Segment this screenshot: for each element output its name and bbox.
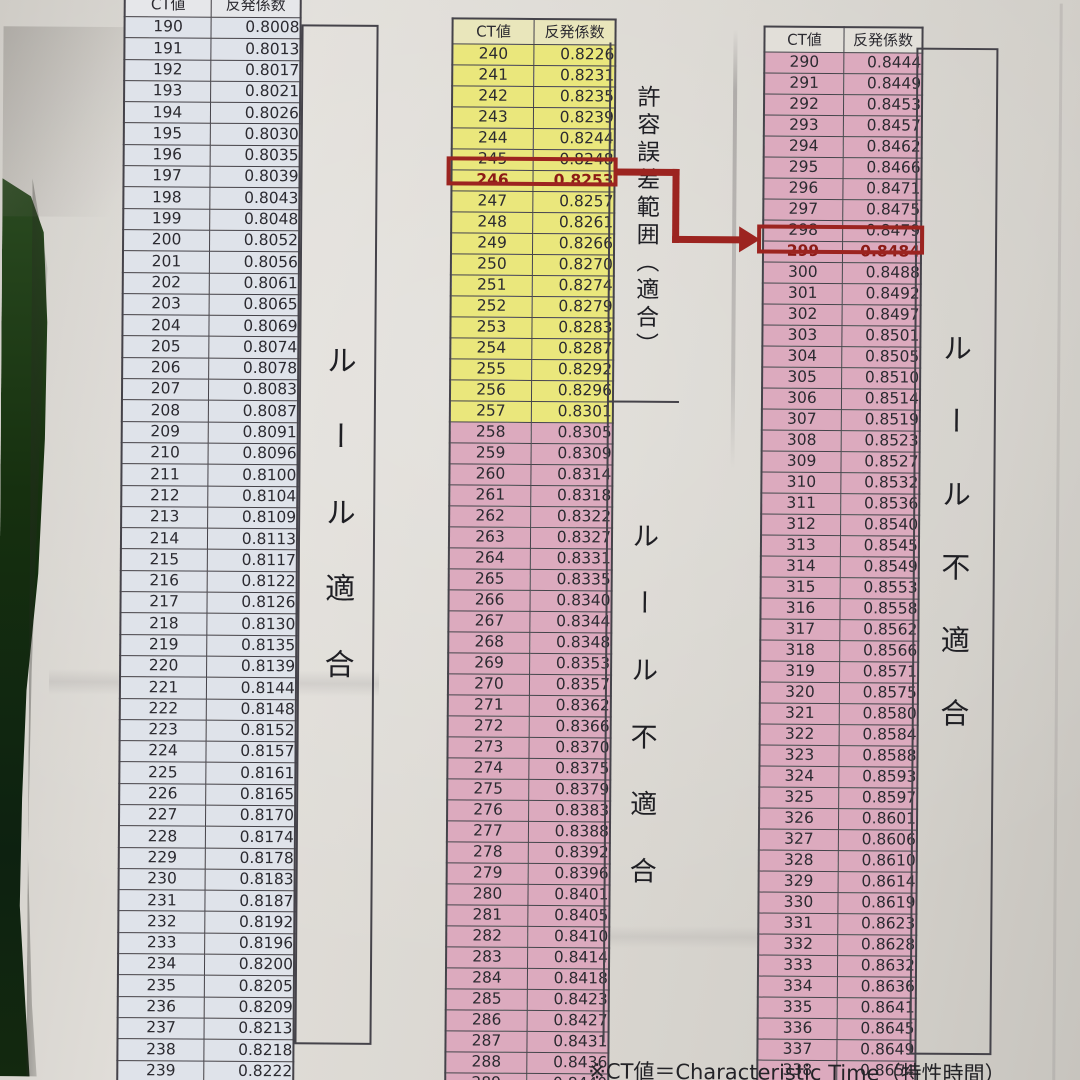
ct-value-cell: 243 (452, 107, 534, 129)
table-row: 3280.8610 (759, 850, 917, 872)
table-row: 3130.8545 (761, 535, 919, 557)
coeff-value-cell: 0.8052 (210, 230, 300, 252)
ct-value-cell: 280 (446, 884, 528, 906)
coeff-value-cell: 0.8566 (840, 641, 919, 663)
ct-value-cell: 319 (760, 661, 840, 683)
ct-value-cell: 265 (449, 569, 531, 591)
ct-value-cell: 258 (450, 422, 532, 444)
coeff-value-cell: 0.8488 (842, 263, 921, 285)
ct-value-cell: 255 (450, 359, 532, 381)
rule-violation-side-label: ルール不適合 (937, 332, 969, 770)
ct-value-cell: 328 (759, 850, 839, 872)
ct-value-cell: 227 (119, 805, 206, 827)
table-row: 2710.8362 (448, 695, 611, 717)
table-row: 2630.8327 (449, 527, 612, 549)
coeff-value-cell: 0.8532 (841, 473, 920, 495)
table-row: 3020.8497 (763, 304, 921, 326)
coeff-value-cell: 0.8628 (838, 935, 917, 957)
table-row: 2390.8222 (117, 1060, 293, 1080)
coeff-value-cell: 0.8606 (838, 830, 917, 852)
ct-value-cell: 335 (758, 997, 838, 1019)
table-row: 3140.8549 (761, 556, 919, 578)
table-row: 2340.8200 (118, 954, 294, 977)
table-row: 1940.8026 (124, 102, 300, 125)
coeff-value-cell: 0.8148 (206, 699, 296, 721)
table-row: 2160.8122 (121, 570, 297, 593)
table-row: 2570.8301 (450, 401, 613, 423)
table-row: 2220.8148 (120, 698, 296, 721)
table-row: 2840.8418 (446, 968, 609, 990)
coeff-value-cell: 0.8069 (209, 315, 299, 337)
table-row: 2120.8104 (121, 485, 297, 508)
coeff-value-cell: 0.8335 (530, 569, 612, 591)
table-row: 2320.8192 (118, 911, 294, 934)
table-row: 2330.8196 (118, 932, 294, 955)
ct-value-cell: 334 (758, 976, 838, 998)
column-header-coeff: 反発係数 (211, 0, 301, 18)
ct-value-cell: 271 (448, 695, 530, 717)
ct-value-cell: 242 (452, 86, 534, 108)
ct-value-cell: 293 (764, 115, 844, 137)
coeff-value-cell: 0.8087 (208, 401, 298, 423)
ct-value-cell: 263 (449, 527, 531, 549)
ct-value-cell: 239 (117, 1060, 204, 1080)
ct-value-cell: 212 (121, 485, 208, 507)
coeff-value-cell: 0.8410 (528, 926, 610, 948)
coeff-value-cell: 0.8266 (532, 233, 614, 255)
rule-ok-side-label-box: ルール適合 (294, 24, 378, 1045)
ct-value-cell: 237 (118, 1018, 205, 1040)
ct-value-cell: 286 (446, 1010, 528, 1032)
coeff-value-cell: 0.8331 (530, 548, 612, 570)
ct-value-cell: 296 (763, 178, 843, 200)
table-row: 2670.8344 (448, 611, 611, 633)
coeff-value-cell: 0.8348 (530, 632, 612, 654)
coeff-value-cell: 0.8091 (208, 422, 298, 444)
ct-value-cell: 294 (764, 136, 844, 158)
ct-value-cell: 314 (761, 556, 841, 578)
table-row: 2130.8109 (121, 506, 297, 529)
table-row: 2930.8457 (764, 115, 922, 137)
ct-value-cell: 222 (120, 698, 207, 720)
ct-value-cell: 279 (447, 863, 529, 885)
ct-value-cell: 278 (447, 842, 529, 864)
coeff-value-cell: 0.8283 (532, 317, 614, 339)
table-row: 1950.8030 (124, 123, 300, 146)
ct-value-cell: 287 (445, 1031, 527, 1053)
table-row: 2810.8405 (446, 905, 609, 927)
table-row: 3240.8593 (759, 766, 917, 788)
table-row: 1900.8008 (124, 17, 300, 40)
coeff-value-cell: 0.8540 (841, 515, 920, 537)
rule-ok-side-label: ルール適合 (320, 344, 353, 724)
rule-violation-side-label: ルール不適合 (626, 522, 656, 924)
coeff-value-cell: 0.8383 (529, 800, 611, 822)
coeff-value-cell: 0.8309 (531, 443, 613, 465)
table-row: 2110.8100 (121, 464, 297, 487)
table-row: 2360.8209 (118, 996, 294, 1019)
coeff-value-cell: 0.8109 (208, 507, 298, 529)
coeff-value-cell: 0.8514 (841, 389, 920, 411)
table-row: 1990.8048 (123, 208, 299, 231)
coeff-value-cell: 0.8379 (529, 779, 611, 801)
ct-value-cell: 273 (447, 737, 529, 759)
ct-value-cell: 281 (446, 905, 528, 927)
table-row: 2700.8357 (448, 674, 611, 696)
table-row: 2530.8283 (450, 317, 613, 339)
coeff-value-cell: 0.8510 (842, 368, 921, 390)
arrow-head-icon (739, 226, 760, 252)
table-row: 2020.8061 (123, 272, 299, 295)
table-row: 2850.8423 (446, 989, 609, 1011)
ct-value-cell: 252 (451, 296, 533, 318)
coeff-value-cell: 0.8614 (838, 872, 917, 894)
coeff-value-cell: 0.8523 (841, 431, 920, 453)
coeff-value-cell: 0.8139 (207, 656, 297, 678)
coeff-value-cell: 0.8213 (204, 1018, 294, 1040)
table-row: 2780.8392 (447, 842, 610, 864)
ct-value-cell: 309 (761, 451, 841, 473)
coeff-value-cell: 0.8244 (533, 128, 615, 150)
table-row: 2400.8226 (452, 44, 615, 66)
coeff-value-cell: 0.8505 (842, 347, 921, 369)
coeff-value-cell: 0.8431 (527, 1031, 609, 1053)
coeff-value-cell: 0.8200 (204, 954, 294, 976)
coeff-value-cell: 0.8270 (532, 254, 614, 276)
table-row: 2620.8322 (449, 506, 612, 528)
footnote: ※CT値＝Characteristic Time（特性時間） (588, 1055, 1005, 1080)
table-row: 2050.8074 (122, 336, 298, 359)
ct-value-cell: 288 (445, 1052, 527, 1074)
coeff-value-cell: 0.8209 (204, 997, 294, 1019)
coeff-value-cell: 0.8619 (838, 893, 917, 915)
table-row: 2080.8087 (122, 400, 298, 423)
ct-value-cell: 207 (122, 379, 209, 401)
ct-value-cell: 220 (120, 655, 207, 677)
coeff-value-cell: 0.8183 (205, 869, 295, 891)
coeff-value-cell: 0.8466 (843, 158, 922, 180)
ct-value-cell: 264 (449, 548, 531, 570)
ct-value-cell: 206 (122, 357, 209, 379)
ct-value-cell: 292 (764, 94, 844, 116)
ct-value-cell: 327 (759, 829, 839, 851)
photographed-document: CT値 反発係数 1900.80081910.80131920.80171930… (0, 0, 1080, 1080)
ct-value-cell: 233 (118, 932, 205, 954)
ct-value-cell: 249 (451, 233, 533, 255)
table-row: 2960.8471 (763, 178, 921, 200)
ct-value-cell: 241 (452, 65, 534, 87)
ct-value-cell: 236 (118, 996, 205, 1018)
ct-value-cell: 336 (758, 1018, 838, 1040)
coeff-value-cell: 0.8501 (842, 326, 921, 348)
table-row: 2230.8152 (120, 719, 296, 742)
table-row: 2170.8126 (120, 592, 296, 615)
table-row: 2250.8161 (119, 762, 295, 785)
ct-value-cell: 301 (763, 283, 843, 305)
table-row: 3040.8505 (762, 346, 920, 368)
coeff-value-cell: 0.8362 (529, 695, 611, 717)
table-row: 3330.8632 (758, 955, 916, 977)
coeff-value-cell: 0.8292 (532, 359, 614, 381)
ct-value-cell: 318 (760, 640, 840, 662)
ct-value-cell: 313 (761, 535, 841, 557)
table-row: 3170.8562 (760, 619, 918, 641)
ct-value-cell: 317 (760, 619, 840, 641)
coeff-value-cell: 0.8222 (204, 1061, 294, 1080)
table-header-row: CT値 反発係数 (452, 18, 615, 45)
coeff-value-cell: 0.8017 (211, 60, 301, 82)
ct-value-cell: 276 (447, 800, 529, 822)
coeff-value-cell: 0.8135 (207, 635, 297, 657)
table-row: 2790.8396 (447, 863, 610, 885)
table-row: 2310.8187 (118, 890, 294, 913)
ct-value-cell: 196 (124, 144, 211, 166)
table-row: 2060.8078 (122, 357, 298, 380)
ct-value-cell: 247 (451, 191, 533, 213)
table-row: 2440.8244 (452, 128, 615, 150)
table-row: 2500.8270 (451, 254, 614, 276)
table-row: 2650.8335 (449, 569, 612, 591)
coeff-value-cell: 0.8021 (211, 81, 301, 103)
coeff-value-cell: 0.8314 (531, 464, 613, 486)
table-row: 2410.8231 (452, 65, 615, 87)
coeff-value-cell: 0.8161 (206, 763, 296, 785)
coeff-value-cell: 0.8444 (844, 53, 923, 75)
ct-value-cell: 200 (123, 230, 210, 252)
table-row: 2680.8348 (448, 632, 611, 654)
table-row: 2890.8440 (445, 1073, 608, 1080)
ct-value-cell: 297 (763, 199, 843, 221)
ct-value-cell: 248 (451, 212, 533, 234)
ct-value-cell: 218 (120, 613, 207, 635)
table-row: 2970.8475 (763, 199, 921, 221)
table-row: 3200.8575 (760, 682, 918, 704)
coeff-value-cell: 0.8340 (530, 590, 612, 612)
ct-value-cell: 230 (119, 868, 206, 890)
ct-value-cell: 240 (452, 44, 534, 66)
table-row: 3090.8527 (761, 451, 919, 473)
ct-value-cell: 282 (446, 926, 528, 948)
coeff-value-cell: 0.8187 (205, 890, 295, 912)
table-row: 3270.8606 (759, 829, 917, 851)
ct-value-cell: 329 (759, 871, 839, 893)
tolerance-side-label: 許容誤差範囲（適合） (632, 84, 657, 359)
ct-value-cell: 190 (124, 17, 211, 39)
ct-value-cell: 269 (448, 653, 530, 675)
annotation-arrow-segment (672, 236, 742, 243)
table-header-row: CT値 反発係数 (125, 0, 301, 18)
coeff-value-cell: 0.8475 (843, 200, 922, 222)
coeff-value-cell: 0.8126 (207, 592, 297, 614)
ct-value-cell: 289 (445, 1073, 527, 1080)
ct-value-cell: 244 (452, 128, 534, 150)
table-row: 2800.8401 (446, 884, 609, 906)
paper-sheet: CT値 反発係数 1900.80081910.80131920.80171930… (0, 0, 1080, 1080)
coeff-value-cell: 0.8396 (528, 863, 610, 885)
ct-value-cell: 229 (119, 847, 206, 869)
ct-value-cell: 250 (451, 254, 533, 276)
ct-value-cell: 216 (121, 570, 208, 592)
ct-value-cell: 321 (760, 703, 840, 725)
table-row: 3080.8523 (762, 430, 920, 452)
ct-value-cell: 225 (119, 762, 206, 784)
ct-value-cell: 254 (450, 338, 532, 360)
coeff-value-cell: 0.8113 (207, 528, 297, 550)
ct-table-290-339: CT値 反発係数 2900.84442910.84492920.84532930… (756, 26, 924, 1080)
coeff-value-cell: 0.8453 (843, 95, 922, 117)
coeff-value-cell: 0.8462 (843, 137, 922, 159)
rule-violation-side-label-cell: ルール不適合 (602, 402, 678, 1042)
table-row: 3340.8636 (758, 976, 916, 998)
coeff-value-cell: 0.8192 (205, 912, 295, 934)
coeff-value-cell: 0.8601 (838, 809, 917, 831)
table-row: 2470.8257 (451, 191, 614, 213)
ct-value-cell: 221 (120, 677, 207, 699)
coeff-value-cell: 0.8274 (532, 275, 614, 297)
coeff-value-cell: 0.8405 (528, 905, 610, 927)
table-row: 3070.8519 (762, 409, 920, 431)
ct-value-cell: 275 (447, 779, 529, 801)
coeff-value-cell: 0.8096 (208, 443, 298, 465)
annotation-arrow-segment (616, 169, 680, 176)
coeff-value-cell: 0.8030 (210, 124, 300, 146)
coeff-value-cell: 0.8301 (531, 401, 613, 423)
ct-value-cell: 304 (762, 346, 842, 368)
ct-value-cell: 261 (449, 485, 531, 507)
ct-value-cell: 210 (122, 443, 209, 465)
table-row: 2200.8139 (120, 655, 296, 678)
column-header-coeff: 反発係数 (844, 27, 923, 53)
table-row: 2520.8279 (451, 296, 614, 318)
coeff-value-cell: 0.8205 (204, 976, 294, 998)
column-header-coeff: 反発係数 (534, 19, 616, 45)
coeff-value-cell: 0.8388 (528, 821, 610, 843)
coeff-value-cell: 0.8588 (839, 746, 918, 768)
coeff-value-cell: 0.8279 (532, 296, 614, 318)
coeff-value-cell: 0.8261 (533, 212, 615, 234)
table-row: 2920.8453 (764, 94, 922, 116)
ct-value-cell: 199 (123, 208, 210, 230)
coeff-value-cell: 0.8130 (207, 613, 297, 635)
coeff-value-cell: 0.8584 (839, 725, 918, 747)
table-row: 3150.8553 (761, 577, 919, 599)
rule-violation-side-label-box: ルール不適合 (909, 48, 998, 1056)
coeff-value-cell: 0.8562 (840, 620, 919, 642)
ct-value-cell: 312 (761, 514, 841, 536)
coeff-value-cell: 0.8427 (527, 1010, 609, 1032)
table-row: 2540.8287 (450, 338, 613, 360)
table-row: 2590.8309 (450, 443, 613, 465)
coeff-value-cell: 0.8144 (206, 677, 296, 699)
coeff-value-cell: 0.8519 (841, 410, 920, 432)
table-row: 2580.8305 (450, 422, 613, 444)
ct-value-cell: 223 (120, 719, 207, 741)
table-row: 2600.8314 (449, 464, 612, 486)
coeff-value-cell: 0.8165 (206, 784, 296, 806)
ct-value-cell: 214 (121, 528, 208, 550)
ct-value-cell: 331 (758, 913, 838, 935)
table-row: 2870.8431 (445, 1031, 608, 1053)
ct-value-cell: 291 (764, 73, 844, 95)
ct-value-cell: 205 (122, 336, 209, 358)
ct-value-cell: 198 (123, 187, 210, 209)
ct-value-cell: 310 (761, 472, 841, 494)
coeff-value-cell: 0.8083 (208, 379, 298, 401)
ct-value-cell: 323 (759, 745, 839, 767)
ct-value-cell: 226 (119, 783, 206, 805)
table-row: 3010.8492 (763, 283, 921, 305)
table-row: 2750.8379 (447, 779, 610, 801)
ct-value-cell: 253 (450, 317, 532, 339)
coeff-value-cell: 0.8305 (531, 422, 613, 444)
ct-value-cell: 251 (451, 275, 533, 297)
coeff-value-cell: 0.8536 (841, 494, 920, 516)
ct-value-cell: 270 (448, 674, 530, 696)
table-row: 3050.8510 (762, 367, 920, 389)
ct-value-cell: 308 (762, 430, 842, 452)
ct-value-cell: 303 (762, 325, 842, 347)
coeff-value-cell: 0.8457 (843, 116, 922, 138)
coeff-value-cell: 0.8056 (209, 251, 299, 273)
coeff-value-cell: 0.8527 (841, 452, 920, 474)
table-row: 2260.8165 (119, 783, 295, 806)
table-row: 3360.8645 (758, 1018, 916, 1040)
table-row: 3100.8532 (761, 472, 919, 494)
table-row: 2180.8130 (120, 613, 296, 636)
table-row: 3310.8623 (758, 913, 916, 935)
highlight-box-299 (757, 225, 924, 255)
ct-value-cell: 204 (122, 315, 209, 337)
table-row: 1920.8017 (124, 59, 300, 82)
table-row: 3000.8488 (763, 262, 921, 284)
ct-value-cell: 322 (760, 724, 840, 746)
ct-value-cell: 320 (760, 682, 840, 704)
coeff-value-cell: 0.8575 (839, 683, 918, 705)
table-row: 2290.8178 (119, 847, 295, 870)
ct-value-cell: 232 (118, 911, 205, 933)
table-row: 3230.8588 (759, 745, 917, 767)
coeff-value-cell: 0.8157 (206, 741, 296, 763)
ct-value-cell: 324 (759, 766, 839, 788)
table-row: 3220.8584 (760, 724, 918, 746)
ct-value-cell: 283 (446, 947, 528, 969)
ct-value-cell: 259 (450, 443, 532, 465)
table-row: 2490.8266 (451, 233, 614, 255)
coeff-value-cell: 0.8008 (211, 17, 301, 39)
coeff-value-cell: 0.8610 (838, 851, 917, 873)
ct-value-cell: 326 (759, 808, 839, 830)
coeff-value-cell: 0.8235 (534, 86, 616, 108)
table-row: 2910.8449 (764, 73, 922, 95)
ct-value-cell: 274 (447, 758, 529, 780)
table-row: 2740.8375 (447, 758, 610, 780)
ct-value-cell: 197 (123, 166, 210, 188)
ct-value-cell: 302 (763, 304, 843, 326)
coeff-value-cell: 0.8370 (529, 737, 611, 759)
coeff-value-cell: 0.8641 (837, 998, 916, 1020)
table-row: 2430.8239 (452, 107, 615, 129)
ct-value-cell: 266 (449, 590, 531, 612)
coeff-value-cell: 0.8375 (529, 758, 611, 780)
ct-value-cell: 228 (119, 826, 206, 848)
table-row: 2100.8096 (122, 443, 298, 466)
table-row: 2040.8069 (122, 315, 298, 338)
table-row: 1980.8043 (123, 187, 299, 210)
coeff-value-cell: 0.8078 (209, 358, 299, 380)
table-row: 2880.8436 (445, 1052, 608, 1074)
ct-value-cell: 194 (124, 102, 211, 124)
coeff-value-cell: 0.8344 (530, 611, 612, 633)
